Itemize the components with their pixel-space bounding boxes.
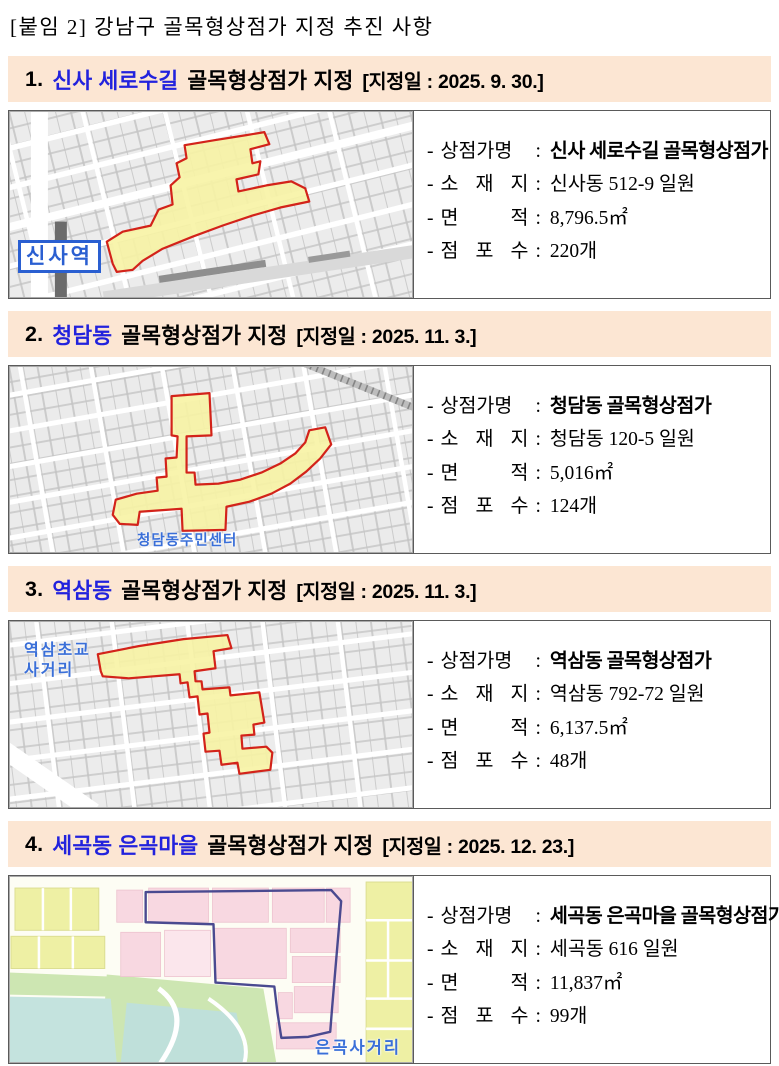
section-2-header: 2. 청담동 골목형상점가 지정 [지정일 : 2025. 11. 3.]	[8, 311, 771, 357]
detail-row: -소 재 지:세곡동 616 일원	[427, 933, 779, 967]
section-1-header: 1. 신사 세로수길 골목형상점가 지정 [지정일 : 2025. 9. 30.…	[8, 56, 771, 102]
section-3-name: 역삼동	[52, 574, 112, 605]
field-label: 상점가명	[441, 900, 529, 934]
section-yeoksam: 3. 역삼동 골목형상점가 지정 [지정일 : 2025. 11. 3.]	[8, 566, 771, 809]
section-3-header: 3. 역삼동 골목형상점가 지정 [지정일 : 2025. 11. 3.]	[8, 566, 771, 612]
section-sinsa: 1. 신사 세로수길 골목형상점가 지정 [지정일 : 2025. 9. 30.…	[8, 56, 771, 299]
section-1-details: -상점가명:신사 세로수길 골목형상점가 -소 재 지:신사동 512-9 일원…	[414, 111, 770, 298]
field-value: 220개	[550, 241, 597, 262]
detail-row: -면 적:5,016㎡	[427, 457, 770, 491]
bullet: -	[427, 751, 434, 772]
section-1-body: 신사역 -상점가명:신사 세로수길 골목형상점가 -소 재 지:신사동 512-…	[8, 110, 771, 299]
separator: :	[536, 429, 541, 450]
separator: :	[536, 463, 541, 484]
section-2-designation-date: [지정일 : 2025. 11. 3.]	[296, 320, 476, 349]
section-2-number: 2.	[25, 322, 43, 347]
field-value: 청담동 120-5 일원	[550, 429, 695, 450]
map-label-sinsa-station: 신사역	[18, 240, 101, 273]
bullet: -	[427, 174, 434, 195]
field-label: 점 포 수	[441, 1000, 529, 1034]
separator: :	[536, 718, 541, 739]
separator: :	[536, 241, 541, 262]
bullet: -	[427, 208, 434, 229]
separator: :	[536, 751, 541, 772]
bullet: -	[427, 496, 434, 517]
section-1-number: 1.	[25, 67, 43, 92]
field-label: 점 포 수	[441, 490, 529, 524]
map-label-community-center: 청담동주민센터	[137, 529, 237, 550]
detail-row: -소 재 지:신사동 512-9 일원	[427, 168, 770, 202]
field-value: 5,016㎡	[550, 463, 613, 484]
field-value: 8,796.5㎡	[550, 208, 628, 229]
map-yeoksam: 역삼초교 사거리	[9, 621, 414, 808]
detail-row: -점 포 수:124개	[427, 490, 770, 524]
section-4-details: -상점가명:세곡동 은곡마을 골목형상점가 -소 재 지:세곡동 616 일원 …	[414, 876, 779, 1063]
separator: :	[536, 174, 541, 195]
field-value: 세곡동 616 일원	[550, 939, 679, 960]
section-3-details: -상점가명:역삼동 골목형상점가 -소 재 지:역삼동 792-72 일원 -면…	[414, 621, 770, 808]
section-2-details: -상점가명:청담동 골목형상점가 -소 재 지:청담동 120-5 일원 -면 …	[414, 366, 770, 553]
separator: :	[536, 684, 541, 705]
field-value: 청담동 골목형상점가	[550, 396, 711, 417]
map-sinsa: 신사역	[9, 111, 414, 298]
map-label-yeoksam-crossroad: 역삼초교 사거리	[24, 641, 110, 681]
detail-row: -상점가명:역삼동 골목형상점가	[427, 645, 770, 679]
detail-row: -상점가명:세곡동 은곡마을 골목형상점가	[427, 900, 779, 934]
map-segok: 은곡사거리	[9, 876, 414, 1063]
detail-row: -소 재 지:역삼동 792-72 일원	[427, 678, 770, 712]
field-label: 소 재 지	[441, 678, 529, 712]
separator: :	[536, 141, 541, 162]
section-cheongdam: 2. 청담동 골목형상점가 지정 [지정일 : 2025. 11. 3.]	[8, 311, 771, 554]
field-label: 면 적	[441, 457, 529, 491]
bullet: -	[427, 463, 434, 484]
field-label: 점 포 수	[441, 235, 529, 269]
bullet: -	[427, 718, 434, 739]
field-value: 124개	[550, 496, 597, 517]
field-value: 48개	[550, 751, 587, 772]
section-3-number: 3.	[25, 577, 43, 602]
section-3-title: 골목형상점가 지정	[121, 574, 287, 605]
detail-row: -면 적:11,837㎡	[427, 967, 779, 1001]
field-value: 6,137.5㎡	[550, 718, 628, 739]
field-value: 신사동 512-9 일원	[550, 174, 695, 195]
page-title: [붙임 2] 강남구 골목형상점가 지정 추진 사항	[8, 8, 771, 50]
field-value: 신사 세로수길 골목형상점가	[550, 141, 768, 162]
section-2-title: 골목형상점가 지정	[121, 319, 287, 350]
section-4-header: 4. 세곡동 은곡마을 골목형상점가 지정 [지정일 : 2025. 12. 2…	[8, 821, 771, 867]
field-label: 소 재 지	[441, 168, 529, 202]
bullet: -	[427, 396, 434, 417]
bullet: -	[427, 651, 434, 672]
field-label: 상점가명	[441, 390, 529, 424]
field-value: 세곡동 은곡마을 골목형상점가	[550, 906, 779, 927]
bullet: -	[427, 141, 434, 162]
section-2-body: 청담동주민센터 -상점가명:청담동 골목형상점가 -소 재 지:청담동 120-…	[8, 365, 771, 554]
yellow-zone-left	[11, 888, 105, 968]
section-1-designation-date: [지정일 : 2025. 9. 30.]	[362, 65, 543, 94]
bullet: -	[427, 241, 434, 262]
detail-row: -점 포 수:99개	[427, 1000, 779, 1034]
bullet: -	[427, 684, 434, 705]
detail-row: -면 적:8,796.5㎡	[427, 202, 770, 236]
bullet: -	[427, 939, 434, 960]
field-label: 면 적	[441, 202, 529, 236]
section-2-name: 청담동	[52, 319, 112, 350]
bullet: -	[427, 906, 434, 927]
field-label: 소 재 지	[441, 423, 529, 457]
section-1-name: 신사 세로수길	[52, 64, 178, 95]
bullet: -	[427, 429, 434, 450]
map-cheongdam: 청담동주민센터	[9, 366, 414, 553]
detail-row: -점 포 수:48개	[427, 745, 770, 779]
field-label: 점 포 수	[441, 745, 529, 779]
section-3-designation-date: [지정일 : 2025. 11. 3.]	[296, 575, 476, 604]
field-value: 99개	[550, 1006, 587, 1027]
separator: :	[536, 208, 541, 229]
separator: :	[536, 496, 541, 517]
field-label: 면 적	[441, 712, 529, 746]
section-1-title: 골목형상점가 지정	[187, 64, 353, 95]
detail-row: -점 포 수:220개	[427, 235, 770, 269]
separator: :	[536, 1006, 541, 1027]
section-3-body: 역삼초교 사거리 -상점가명:역삼동 골목형상점가 -소 재 지:역삼동 792…	[8, 620, 771, 809]
separator: :	[536, 651, 541, 672]
map-cheongdam-image	[9, 366, 413, 553]
separator: :	[536, 973, 541, 994]
separator: :	[536, 939, 541, 960]
field-value: 11,837㎡	[550, 973, 622, 994]
section-4-designation-date: [지정일 : 2025. 12. 23.]	[382, 830, 574, 859]
separator: :	[536, 396, 541, 417]
bullet: -	[427, 973, 434, 994]
detail-row: -소 재 지:청담동 120-5 일원	[427, 423, 770, 457]
field-label: 면 적	[441, 967, 529, 1001]
section-4-name: 세곡동 은곡마을	[52, 829, 198, 860]
field-label: 상점가명	[441, 645, 529, 679]
section-4-number: 4.	[25, 832, 43, 857]
separator: :	[536, 906, 541, 927]
map-label-eungok-crossroad: 은곡사거리	[315, 1034, 401, 1058]
section-4-title: 골목형상점가 지정	[207, 829, 373, 860]
detail-row: -상점가명:청담동 골목형상점가	[427, 390, 770, 424]
bullet: -	[427, 1006, 434, 1027]
field-value: 역삼동 792-72 일원	[550, 684, 705, 705]
section-segok: 4. 세곡동 은곡마을 골목형상점가 지정 [지정일 : 2025. 12. 2…	[8, 821, 771, 1064]
detail-row: -면 적:6,137.5㎡	[427, 712, 770, 746]
section-4-body: 은곡사거리 -상점가명:세곡동 은곡마을 골목형상점가 -소 재 지:세곡동 6…	[8, 875, 771, 1064]
field-label: 소 재 지	[441, 933, 529, 967]
field-label: 상점가명	[441, 135, 529, 169]
detail-row: -상점가명:신사 세로수길 골목형상점가	[427, 135, 770, 169]
field-value: 역삼동 골목형상점가	[550, 651, 711, 672]
